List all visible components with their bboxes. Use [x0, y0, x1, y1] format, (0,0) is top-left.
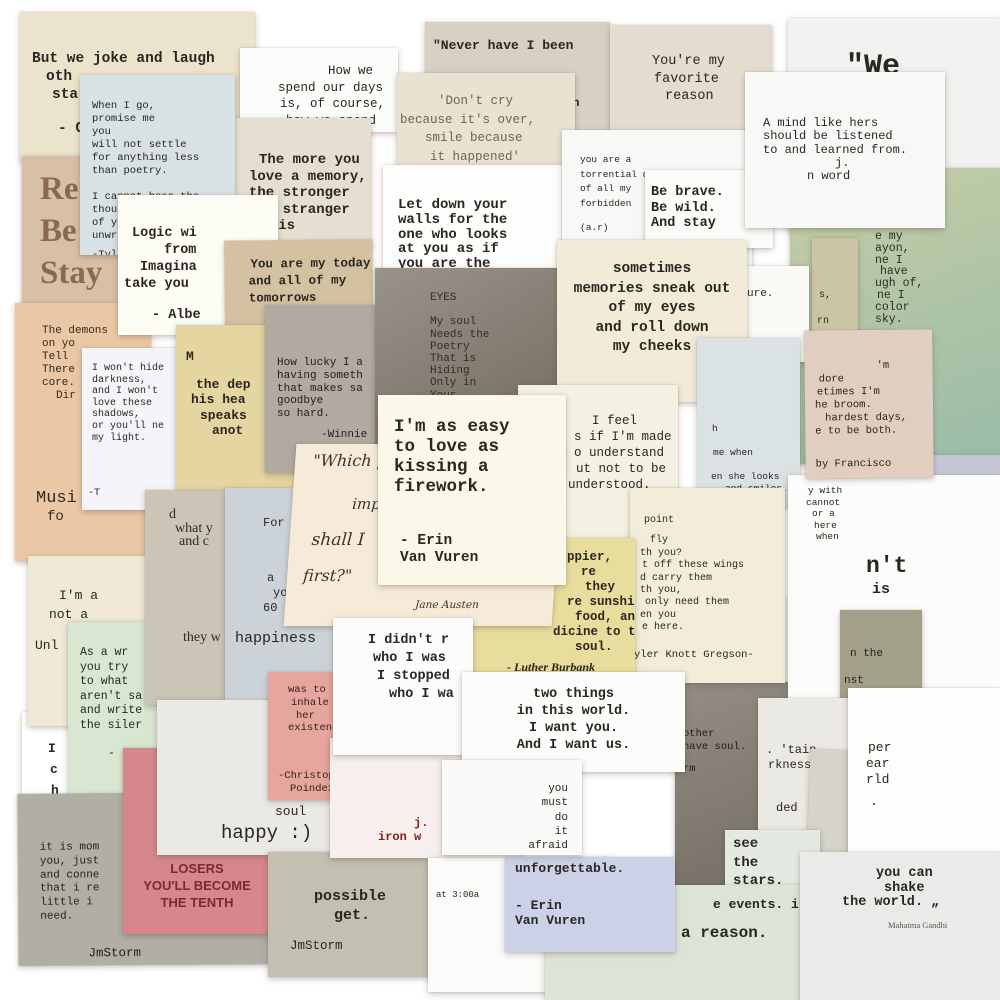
quote-line: rld: [866, 772, 1000, 788]
quote-line: Jane Austen: [415, 599, 554, 611]
card-i-wont-hide-darkness: I won't hidedarkness,and I won'tlove the…: [82, 348, 182, 510]
quote-line: d carry them: [640, 573, 785, 585]
quote-line: goodbye: [277, 395, 390, 408]
quote-line: see: [733, 835, 820, 854]
quote-line: happy :): [221, 823, 347, 845]
quote-line: ut not to be: [576, 461, 678, 477]
quote-line: ayon,: [875, 243, 1000, 255]
quote-line: rn: [817, 316, 858, 328]
quote-line: th you?: [640, 548, 785, 560]
quote-line: darkness,: [92, 375, 182, 387]
quote-line: re: [581, 565, 635, 580]
quote-line: promise me: [92, 113, 235, 126]
quote-line: the world. „: [842, 896, 1000, 911]
quote-line: or you'll ne: [92, 421, 182, 433]
quote-line: or a: [812, 508, 1000, 520]
quote-line: Van Vuren: [400, 550, 566, 567]
quote-line: so hard.: [277, 408, 390, 421]
quote-line: dore: [819, 372, 933, 386]
quote-line: EYES: [430, 292, 563, 304]
quote-line: only need them: [645, 597, 785, 609]
quote-line: should be listened: [763, 130, 945, 143]
quote-line: they: [585, 580, 635, 595]
quote-line: to and learned from.: [763, 144, 945, 157]
quote-line: JmStorm: [88, 945, 270, 961]
quote-line: unforgettable.: [515, 861, 675, 876]
quote-line: - Erin: [400, 533, 566, 550]
quote-line: 'Don't cry: [438, 92, 575, 111]
quote-line: y with: [808, 485, 1000, 497]
quote-line: per: [868, 740, 1000, 756]
quote-line: it happened': [430, 148, 575, 167]
quote-line: YOU'LL BECOME: [123, 877, 271, 894]
quote-line: you: [442, 782, 568, 796]
quote-line: it: [442, 825, 568, 839]
quote-line: THE TENTH: [123, 894, 271, 911]
quote-line: 'm: [877, 359, 933, 373]
quote-line: love a memory,: [249, 169, 371, 186]
quote-line: I didn't r: [368, 632, 473, 650]
quote-line: o understand: [574, 445, 678, 461]
card-you-must-do-it-afraid: youmustdoitafraid- elisabeth elliot: [442, 760, 582, 855]
quote-line: and I won't: [92, 386, 182, 398]
quote-line: .: [870, 794, 1000, 810]
quote-line: you: [92, 126, 235, 139]
quote-line: to love as: [394, 437, 566, 457]
quote-line: "Never have I been: [433, 38, 610, 53]
card-she-looks-and-smiles: h me when en she looksand smiles.: [697, 338, 800, 506]
quote-line: for anything less: [92, 152, 235, 165]
quote-line: in this world.: [462, 703, 685, 720]
quote-line: h: [712, 423, 800, 435]
quote-sticker-collage: But we joke and laughothsta- CHow wespen…: [0, 0, 1000, 1000]
quote-line: you are a: [580, 153, 752, 168]
quote-line: spend our days: [278, 80, 398, 97]
quote-line: n the: [850, 648, 922, 661]
quote-line: of my eyes: [557, 299, 747, 319]
quote-line: fly: [650, 535, 785, 547]
quote-line: you can: [876, 867, 1000, 882]
quote-line: Mahatma Gandhi: [888, 921, 1000, 931]
card-tyler-knott-wings: pointflyth you?t off these wingsd carry …: [630, 488, 785, 683]
quote-line: smile because: [425, 129, 575, 148]
quote-line: Poetry: [430, 341, 563, 353]
quote-line: e to be both.: [815, 424, 933, 438]
quote-line: e here.: [642, 622, 785, 634]
quote-line: That is: [430, 353, 563, 365]
quote-line: I won't hide: [92, 363, 182, 375]
quote-line: soul.: [575, 640, 635, 655]
quote-line: must: [442, 796, 568, 810]
quote-line: s if I'm made: [574, 429, 678, 445]
quote-line: How we: [328, 63, 398, 80]
quote-line: en you: [640, 610, 785, 622]
quote-line: here: [814, 520, 1000, 532]
quote-line: point: [644, 515, 785, 527]
quote-line: when: [816, 531, 1000, 543]
quote-line: Hiding: [430, 365, 563, 377]
quote-line: kissing a: [394, 457, 566, 477]
quote-line: hardest days,: [825, 411, 933, 425]
quote-line: s,: [819, 290, 858, 302]
card-i-didnt-recognize: I didn't rwho I wasI stoppedwho I wa: [333, 618, 473, 755]
card-whisper-dear-world: perearrld.: [848, 688, 1000, 870]
quote-line: because it's over,: [400, 111, 575, 130]
quote-line: shadows,: [92, 409, 182, 421]
quote-line: than poetry.: [92, 165, 235, 178]
card-two-things-i-want-you: two thingsin this world.I want you.And I…: [462, 672, 685, 772]
card-by-francisco-broom: 'mdoreetimes I'mhe broom.hardest days,e …: [804, 329, 934, 478]
quote-line: that makes sa: [277, 383, 390, 396]
quote-line: and all of my: [249, 272, 373, 290]
quote-line: [709, 459, 800, 471]
quote-line: who I was: [373, 650, 473, 668]
quote-line: Stay: [40, 252, 128, 294]
card-gandhi-shake-the-world: you canshakethe world. „Mahatma Gandhi: [800, 852, 1000, 1000]
quote-line: Let down your: [398, 198, 563, 213]
quote-line: You're my: [652, 53, 772, 71]
quote-line: n't: [866, 553, 1000, 579]
quote-line: will not settle: [92, 139, 235, 152]
quote-line: How lucky I a: [277, 357, 390, 370]
quote-line: When I go,: [92, 100, 235, 113]
quote-line: en she looks: [711, 471, 800, 483]
quote-line: me when: [713, 447, 800, 459]
quote-line: A mind like hers: [763, 117, 945, 130]
quote-line: firework.: [394, 477, 566, 497]
quote-line: and roll down: [557, 319, 747, 339]
quote-line: sometimes: [557, 260, 747, 280]
card-erin-firework: I'm as easyto love askissing afirework.-…: [378, 395, 566, 585]
quote-line: [92, 178, 235, 191]
quote-line: t off these wings: [642, 560, 785, 572]
quote-line: - Erin: [515, 898, 675, 913]
quote-line: My soul: [430, 316, 563, 328]
quote-line: fo: [47, 509, 151, 525]
quote-line: And I want us.: [462, 737, 685, 754]
quote-line: j.: [835, 157, 945, 170]
quote-line: do: [442, 811, 568, 825]
quote-line: two things: [462, 686, 685, 703]
quote-line: yler Knott Gregson-: [634, 649, 785, 661]
quote-line: ure.: [747, 288, 809, 301]
quote-line: The more you: [259, 152, 371, 169]
quote-line: one who looks: [398, 228, 563, 243]
quote-line: ear: [866, 756, 1000, 772]
quote-line: walls for the: [398, 213, 563, 228]
quote-line: dicine to the: [553, 625, 635, 640]
quote-line: [709, 435, 800, 447]
quote-line: nst: [844, 675, 922, 688]
quote-line: ppier,: [567, 550, 635, 565]
quote-line: etimes I'm: [817, 385, 933, 399]
quote-line: who I wa: [389, 686, 473, 704]
quote-line: by Francisco: [816, 457, 934, 471]
quote-line: I want you.: [462, 720, 685, 737]
quote-line: color: [875, 302, 1000, 314]
card-a-mind-like-hers: A mind like hersshould be listenedto and…: [745, 72, 945, 228]
quote-line: th you,: [640, 585, 785, 597]
quote-line: he broom.: [815, 398, 933, 412]
quote-line: cannot: [806, 497, 1000, 509]
quote-line: memories sneak out: [557, 280, 747, 300]
quote-line: love these: [92, 398, 182, 410]
quote-line: is: [872, 581, 1000, 598]
quote-line: Needs the: [430, 329, 563, 341]
quote-line: I'm as easy: [394, 417, 566, 437]
quote-line: my light.: [92, 433, 182, 445]
quote-line: at you as if: [398, 242, 563, 257]
quote-line: is, of course,: [280, 96, 398, 113]
quote-line: food, and: [575, 610, 635, 625]
quote-line: I feel: [592, 413, 678, 429]
quote-line: Van Vuren: [515, 913, 675, 928]
quote-line: n word: [807, 170, 945, 183]
card-unforgettable-erin: unforgettable.- ErinVan Vuren: [505, 857, 675, 952]
quote-line: [430, 304, 563, 316]
quote-line: shake: [884, 882, 1000, 897]
quote-line: re sunshine,: [567, 595, 635, 610]
quote-line: afraid: [442, 839, 568, 853]
quote-line: having someth: [277, 370, 390, 383]
quote-line: You are my today: [250, 255, 372, 273]
quote-line: sky.: [875, 314, 1000, 326]
quote-line: LOSERS: [123, 860, 271, 877]
quote-line: ne I: [877, 290, 1000, 302]
quote-line: But we joke and laugh: [32, 50, 255, 68]
quote-line: I stopped: [377, 668, 473, 686]
